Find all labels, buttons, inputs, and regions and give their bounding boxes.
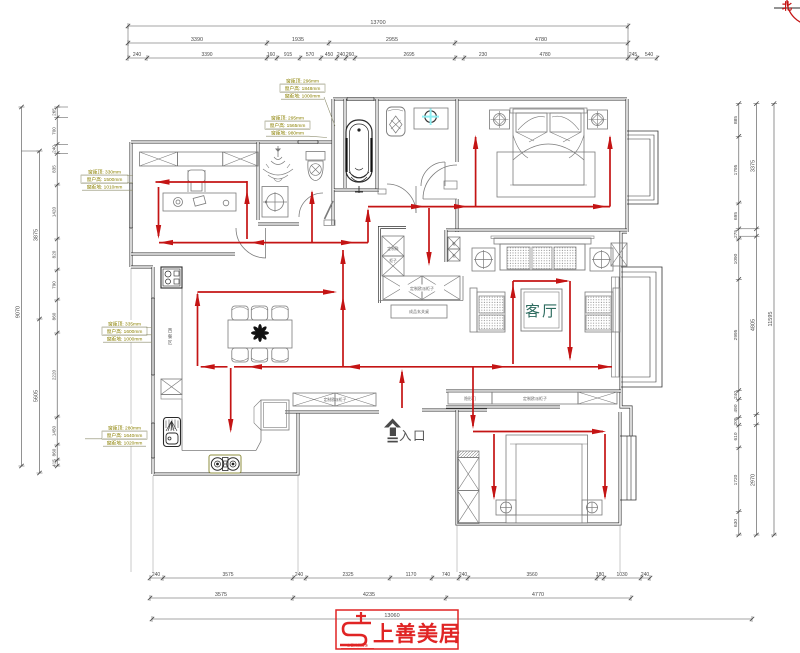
svg-text:790: 790 [51, 281, 56, 289]
svg-text:265: 265 [51, 108, 56, 116]
svg-text:窗距顶: 296mm: 窗距顶: 296mm [286, 78, 319, 85]
svg-text:275: 275 [733, 230, 739, 238]
svg-text:700: 700 [51, 127, 56, 135]
svg-text:1935: 1935 [292, 37, 304, 43]
svg-text:窗距地: 1010mm: 窗距地: 1010mm [87, 183, 123, 190]
svg-text:1170: 1170 [406, 572, 417, 578]
svg-text:180: 180 [596, 572, 605, 578]
svg-text:240: 240 [337, 52, 346, 58]
svg-text:鞋: 鞋 [452, 241, 456, 246]
svg-text:245: 245 [629, 52, 638, 58]
svg-text:窗户高: 1565mm: 窗户高: 1565mm [270, 122, 306, 129]
svg-text:240: 240 [51, 145, 56, 153]
svg-text:窗距顶: 295mm: 窗距顶: 295mm [271, 115, 304, 122]
svg-text:205: 205 [733, 417, 739, 425]
svg-text:610: 610 [733, 432, 739, 440]
svg-text:3375: 3375 [751, 160, 757, 172]
svg-text:2325: 2325 [342, 572, 353, 578]
svg-text:3875: 3875 [34, 229, 40, 241]
svg-text:570: 570 [306, 52, 315, 58]
svg-text:窗距地: 1000mm: 窗距地: 1000mm [285, 92, 321, 99]
svg-text:450: 450 [325, 52, 334, 58]
svg-text:630: 630 [733, 519, 739, 527]
svg-text:2220: 2220 [51, 369, 56, 380]
svg-text:窗距地: 1000mm: 窗距地: 1000mm [107, 335, 143, 342]
svg-text:窗距顶: 330mm: 窗距顶: 330mm [88, 169, 121, 176]
svg-text:5605: 5605 [34, 390, 40, 402]
svg-text:11595: 11595 [768, 312, 774, 327]
svg-text:餐: 餐 [168, 333, 173, 340]
svg-text:定制欧派柜子: 定制欧派柜子 [523, 395, 547, 401]
svg-text:定制欧派柜子: 定制欧派柜子 [324, 397, 347, 402]
svg-text:240: 240 [459, 572, 468, 578]
svg-text:3575: 3575 [222, 572, 233, 578]
svg-text:4780: 4780 [535, 37, 547, 43]
svg-text:3560: 3560 [526, 572, 537, 578]
svg-text:240: 240 [295, 572, 304, 578]
svg-text:9070: 9070 [16, 306, 22, 318]
svg-text:窗户高: 1848mm: 窗户高: 1848mm [285, 85, 321, 92]
svg-text:835: 835 [51, 165, 56, 173]
svg-text:240: 240 [733, 391, 739, 399]
svg-text:415: 415 [51, 459, 56, 467]
svg-text:1090: 1090 [733, 253, 739, 264]
svg-text:4770: 4770 [532, 592, 544, 598]
svg-text:885: 885 [733, 116, 739, 124]
svg-text:860: 860 [51, 312, 56, 320]
svg-text:柜子: 柜子 [389, 258, 397, 263]
svg-text:上善美居: 上善美居 [373, 622, 461, 646]
svg-text:窗距顶: 335mm: 窗距顶: 335mm [108, 321, 141, 328]
svg-text:2955: 2955 [386, 37, 398, 43]
svg-text:成品玄关桌: 成品玄关桌 [409, 308, 429, 314]
svg-text:240: 240 [641, 572, 650, 578]
svg-text:490: 490 [733, 404, 739, 412]
svg-text:1450: 1450 [51, 425, 56, 436]
svg-text:2695: 2695 [403, 52, 414, 58]
svg-text:2995: 2995 [733, 329, 739, 340]
svg-text:北: 北 [782, 0, 792, 13]
svg-text:定制欧派柜子: 定制欧派柜子 [410, 285, 434, 291]
svg-text:4780: 4780 [539, 52, 550, 58]
svg-text:窗户高: 1600mm: 窗户高: 1600mm [107, 328, 143, 335]
svg-text:740: 740 [442, 572, 451, 578]
svg-text:柜: 柜 [452, 253, 456, 258]
svg-text:4235: 4235 [363, 592, 375, 598]
svg-text:隐形门: 隐形门 [464, 395, 476, 401]
svg-text:160: 160 [267, 52, 276, 58]
svg-text:860: 860 [51, 448, 56, 456]
svg-text:240: 240 [152, 572, 161, 578]
svg-text:2970: 2970 [751, 474, 757, 486]
svg-text:13700: 13700 [370, 20, 385, 26]
svg-text:3390: 3390 [191, 37, 203, 43]
svg-text:4805: 4805 [751, 319, 757, 331]
svg-text:入口: 入口 [399, 429, 427, 443]
svg-text:915: 915 [284, 52, 293, 58]
svg-text:540: 540 [645, 52, 654, 58]
svg-text:窗距地: 980mm: 窗距地: 980mm [271, 129, 304, 136]
svg-text:820: 820 [51, 250, 56, 258]
svg-text:窗户高: 1500mm: 窗户高: 1500mm [87, 176, 123, 183]
svg-text:1795: 1795 [733, 164, 739, 175]
svg-text:窗距顶: 280mm: 窗距顶: 280mm [108, 425, 141, 432]
svg-text:3575: 3575 [215, 592, 227, 598]
svg-text:13060: 13060 [384, 613, 399, 619]
svg-text:定制鞋: 定制鞋 [387, 246, 399, 251]
svg-text:3390: 3390 [201, 52, 212, 58]
svg-text:1030: 1030 [616, 572, 627, 578]
svg-text:窗距地: 1020mm: 窗距地: 1020mm [107, 439, 143, 446]
svg-text:230: 230 [479, 52, 488, 58]
svg-text:上善美居装饰: 上善美居装饰 [347, 643, 368, 648]
svg-text:区: 区 [168, 340, 173, 345]
svg-text:客厅: 客厅 [525, 303, 559, 320]
svg-text:1720: 1720 [733, 474, 739, 485]
svg-text:695: 695 [733, 212, 739, 220]
svg-text:1420: 1420 [51, 206, 56, 217]
svg-text:240: 240 [133, 52, 142, 58]
svg-text:260: 260 [346, 52, 355, 58]
svg-text:窗户高: 1640mm: 窗户高: 1640mm [107, 432, 143, 439]
